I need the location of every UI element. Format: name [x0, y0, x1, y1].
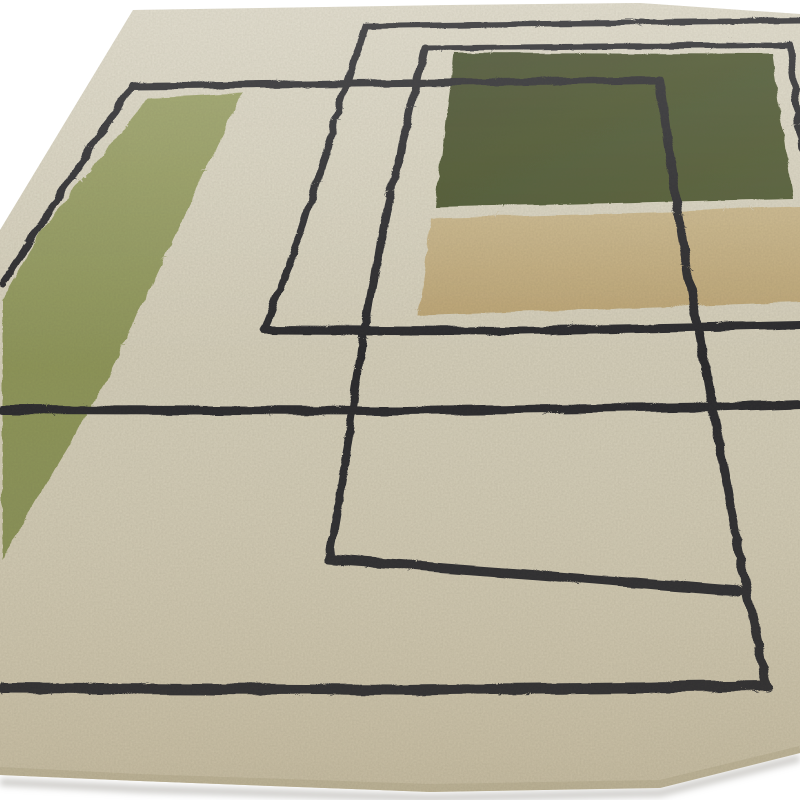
- rug-photo-canvas: Cream geometric wool rug — angled produc…: [0, 0, 800, 800]
- lighting-overlay: [0, 0, 800, 800]
- rug-pattern: [0, 0, 800, 800]
- rug-product-photo: Cream geometric wool rug — angled produc…: [0, 0, 800, 800]
